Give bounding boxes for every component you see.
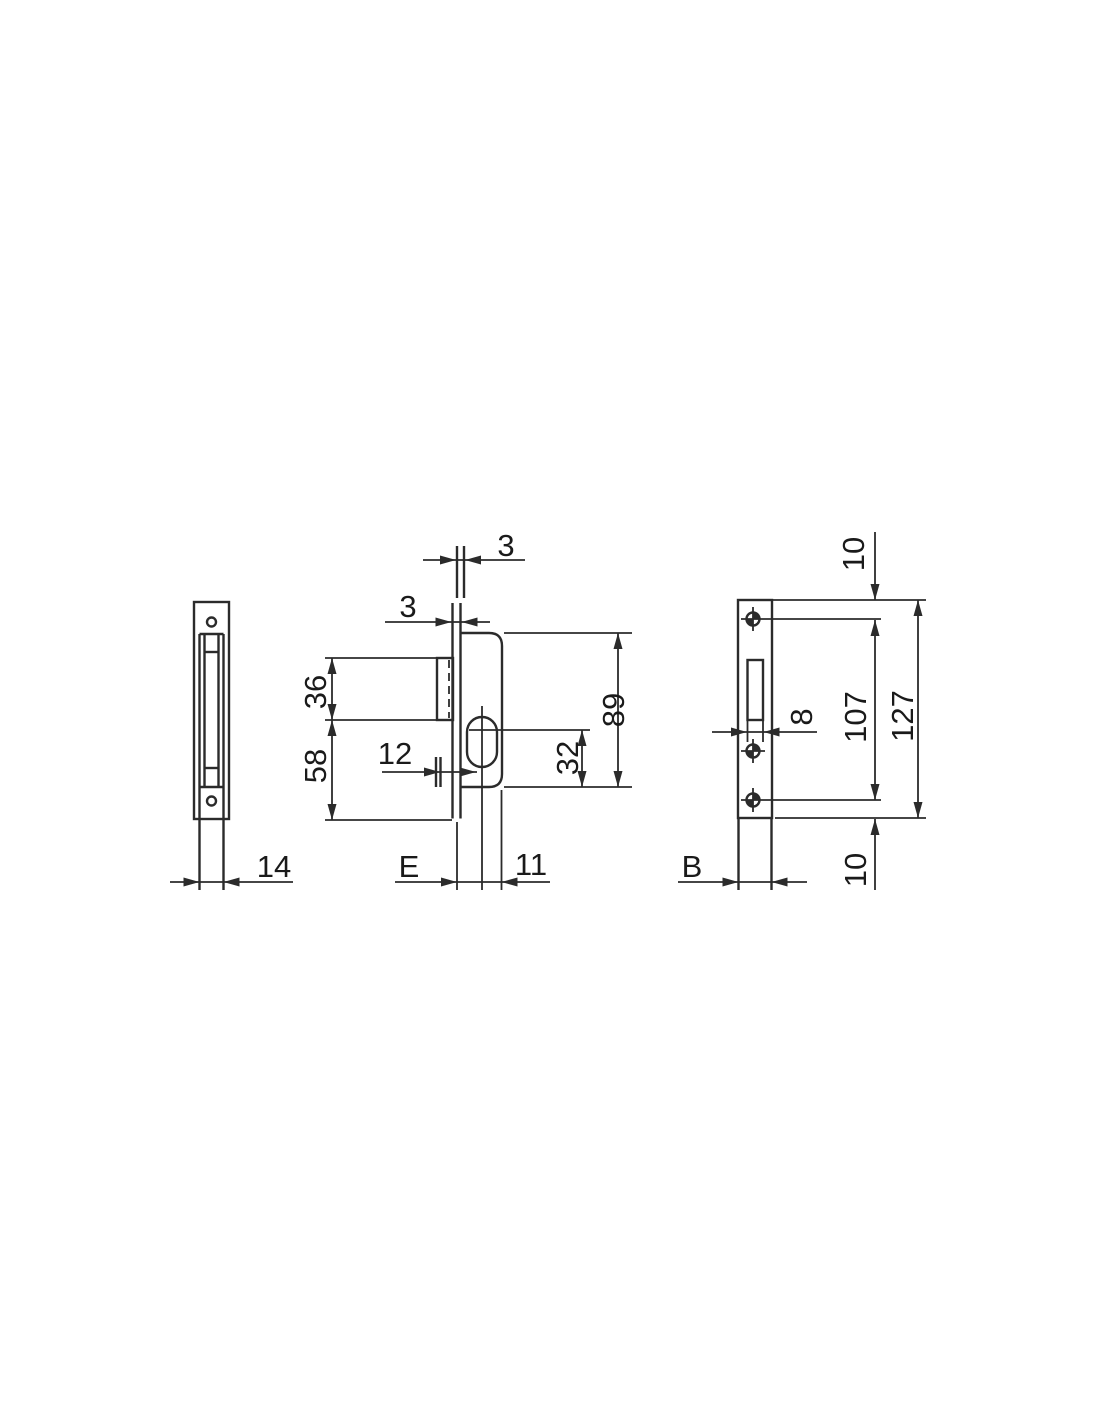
dim-pocket-chain: 36 58 bbox=[298, 658, 452, 820]
dim-label-127: 127 bbox=[885, 690, 920, 742]
side-view: 14 bbox=[170, 602, 293, 890]
dim-key-center: 32 bbox=[550, 730, 587, 787]
dim-label-107: 107 bbox=[838, 691, 873, 743]
plate-screw-hole-bottom bbox=[741, 788, 881, 812]
plate-outline bbox=[738, 600, 772, 818]
dim-label-89: 89 bbox=[596, 693, 631, 727]
dim-slot-width: 8 bbox=[712, 708, 819, 736]
dim-case-width-B: B bbox=[678, 849, 807, 887]
dim-label-B: B bbox=[682, 849, 703, 884]
lock-technical-drawing: 14 3 3 bbox=[0, 0, 1100, 1422]
dim-side-case-width: 14 bbox=[170, 849, 293, 887]
dim-label-11: 11 bbox=[515, 847, 547, 882]
dim-strike-thickness: 3 bbox=[423, 528, 525, 565]
dim-label-3-lower: 3 bbox=[399, 589, 416, 624]
dim-label-14: 14 bbox=[257, 849, 291, 884]
dim-hole-chain: 10 107 10 bbox=[836, 532, 880, 890]
dim-label-32: 32 bbox=[550, 741, 585, 775]
plate-screw-hole-top bbox=[741, 607, 881, 631]
dim-label-10-bottom: 10 bbox=[838, 853, 873, 887]
drawing-page: 14 3 3 bbox=[0, 0, 1100, 1422]
side-case-channel bbox=[200, 634, 224, 890]
faceplate-view: 8 10 107 10 127 bbox=[678, 532, 926, 890]
strike-strip bbox=[457, 546, 464, 598]
dim-plate-height: 127 bbox=[885, 600, 923, 818]
dim-label-10-top: 10 bbox=[836, 537, 871, 571]
dim-latch-depth: 12 bbox=[378, 736, 477, 777]
latch-pocket bbox=[437, 658, 453, 720]
dim-label-36: 36 bbox=[298, 675, 333, 709]
dim-label-12: 12 bbox=[378, 736, 412, 771]
dim-faceplate-thickness: 3 bbox=[385, 589, 490, 627]
dim-label-3-top: 3 bbox=[497, 528, 514, 563]
front-view: 3 3 bbox=[298, 528, 632, 890]
keyhole-slot bbox=[748, 660, 764, 720]
dim-label-E: E bbox=[399, 849, 420, 884]
dim-label-8: 8 bbox=[784, 708, 819, 725]
side-screw-hole-bottom bbox=[207, 797, 216, 806]
dim-backset: E 11 bbox=[395, 847, 550, 887]
side-screw-hole-top bbox=[207, 618, 216, 627]
dim-label-58: 58 bbox=[298, 749, 333, 783]
plate-screw-hole-middle bbox=[741, 739, 765, 763]
